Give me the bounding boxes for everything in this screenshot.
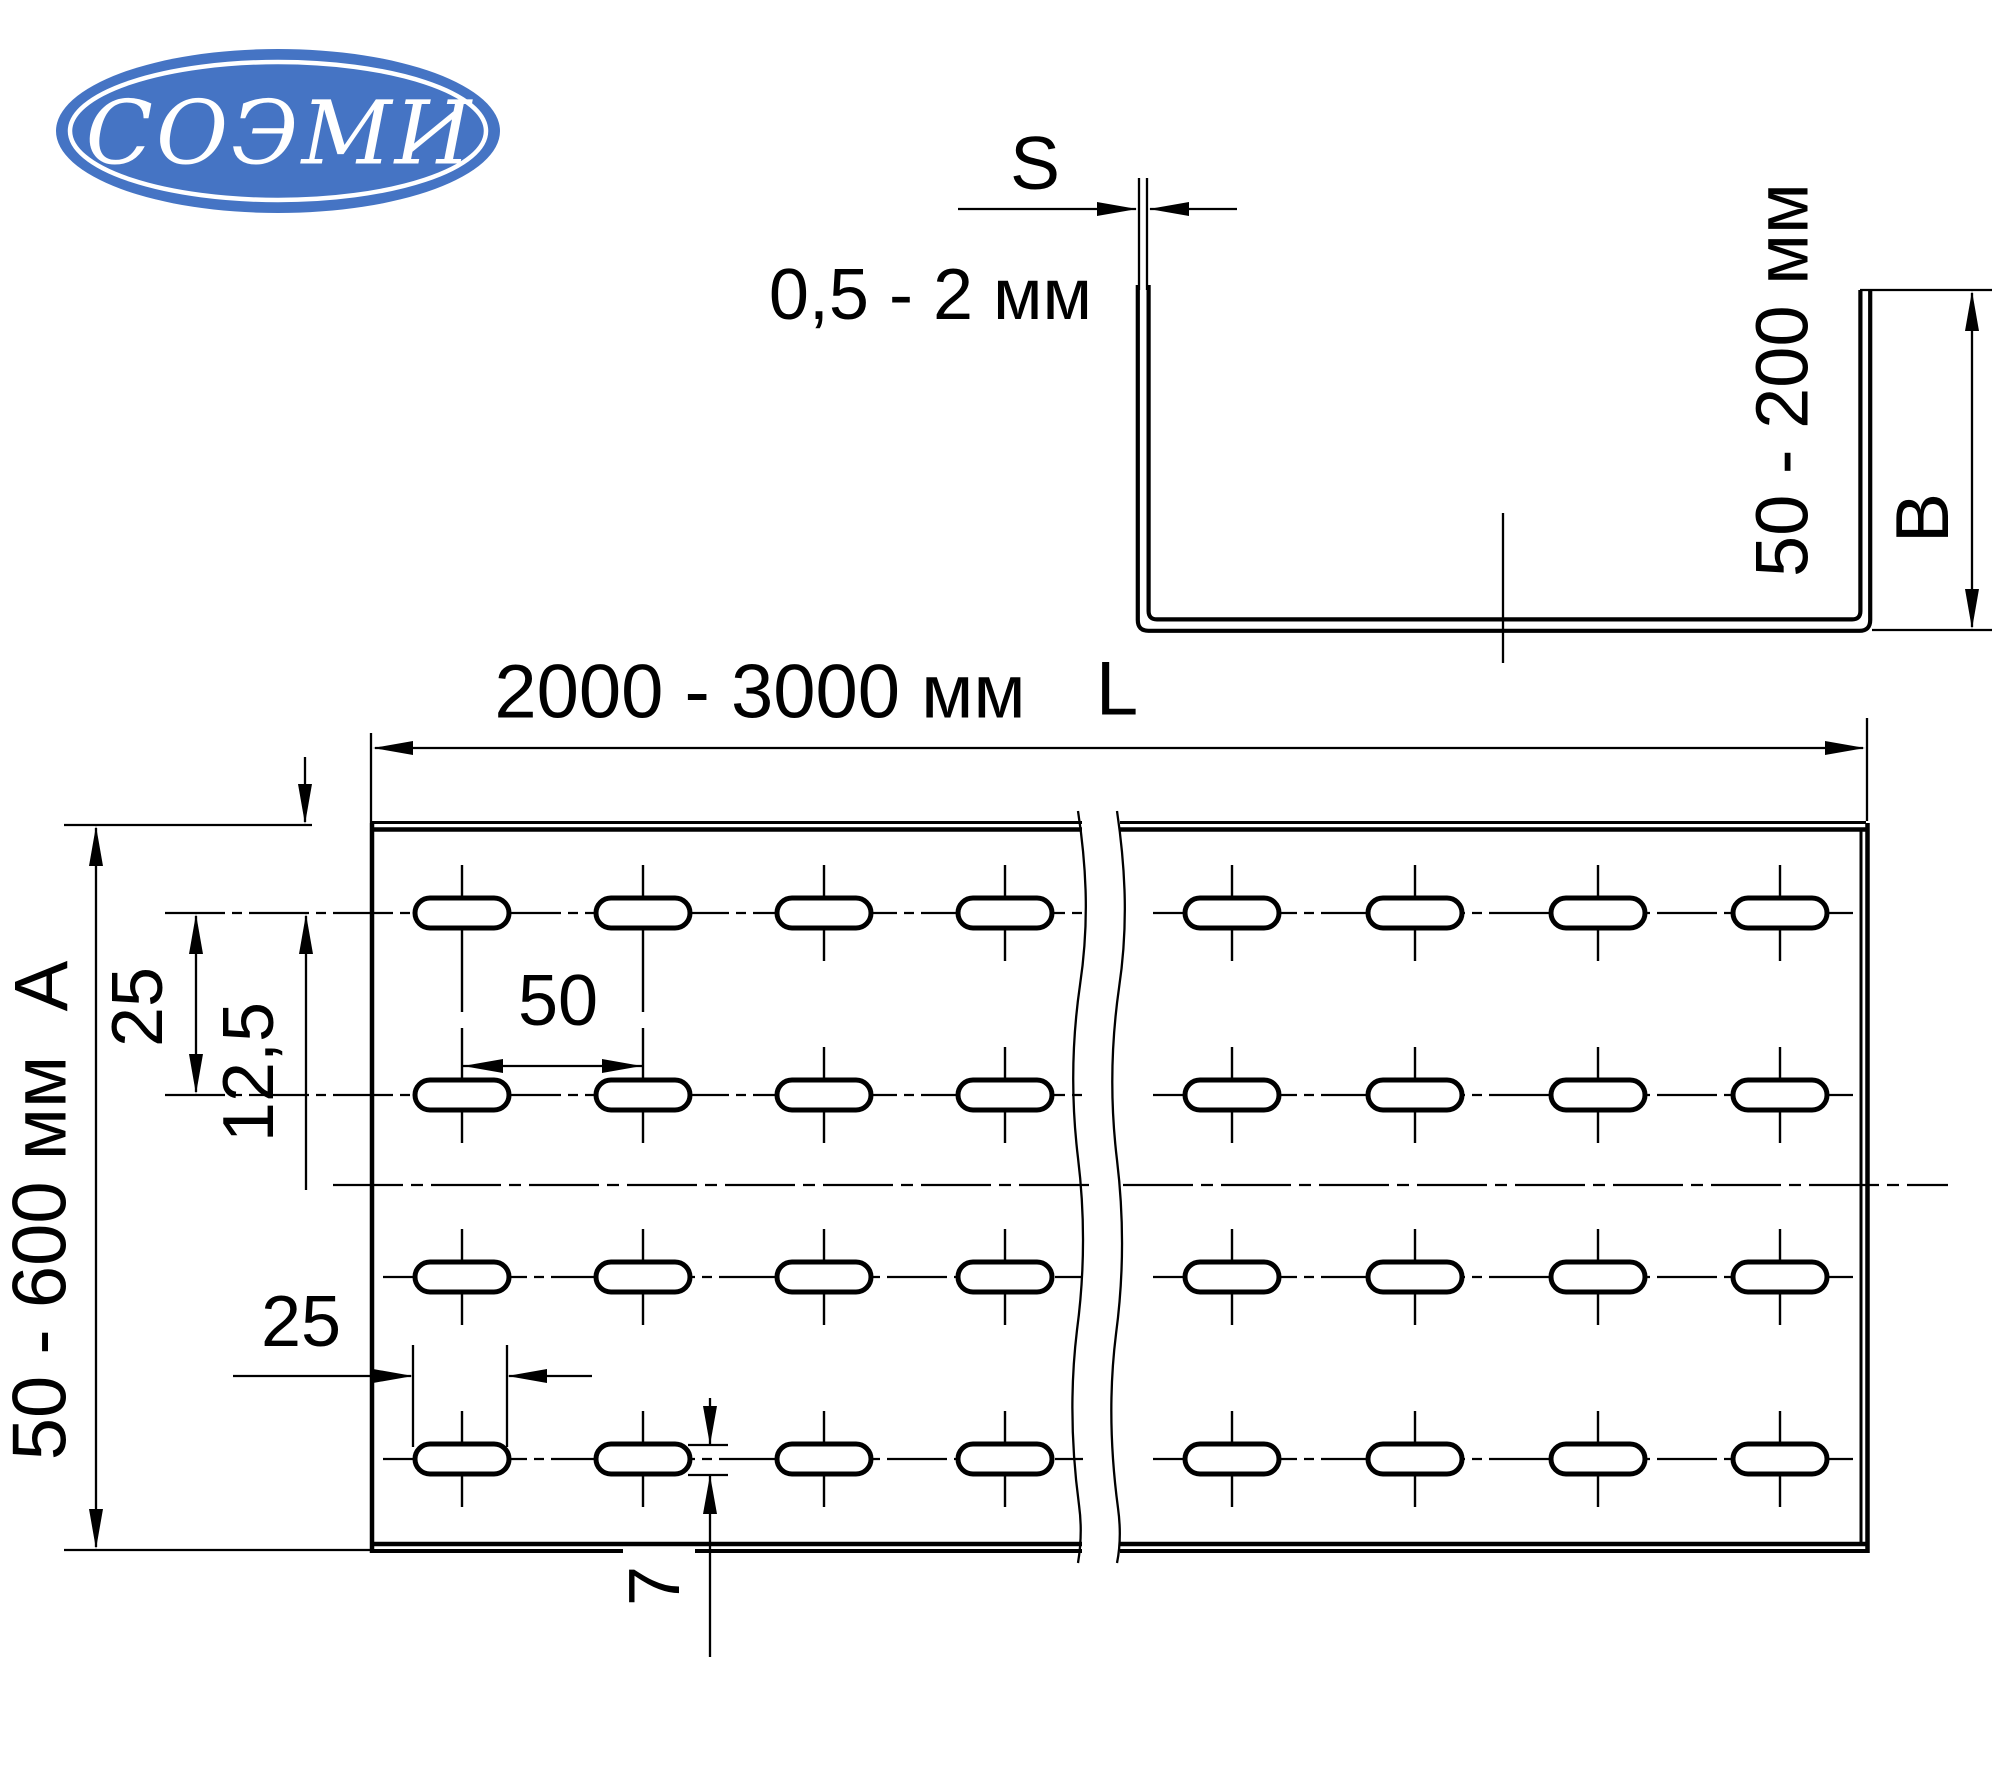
thickness-range-label: 0,5 - 2 мм <box>769 255 1092 335</box>
flange-height-letter-label: B <box>1880 493 1964 543</box>
slot <box>596 898 690 928</box>
arrow-down-icon <box>298 784 312 824</box>
slot <box>1368 1262 1462 1292</box>
flange-height-range-label: 50 - 200 мм <box>1741 183 1824 577</box>
slot <box>777 1262 871 1292</box>
slot <box>1185 1080 1279 1110</box>
arrow-left-icon <box>1149 202 1189 216</box>
arrow-up-icon <box>189 914 203 954</box>
logo-text: СОЭМИ <box>86 82 475 185</box>
slot <box>958 1262 1052 1292</box>
first-row-offset-label: 12,5 <box>209 1002 289 1142</box>
arrow-right-icon <box>373 1369 413 1383</box>
arrow-left-icon <box>463 1059 503 1073</box>
arrow-down-icon <box>703 1406 717 1445</box>
slot <box>1733 1262 1827 1292</box>
length-letter-label: L <box>1096 647 1138 732</box>
slot <box>1185 1262 1279 1292</box>
row-spacing-dimension: 25 <box>98 914 203 1094</box>
arrow-right-icon <box>1097 202 1137 216</box>
break-line <box>1072 811 1086 1563</box>
arrow-up-icon <box>703 1475 717 1514</box>
plate-outline <box>333 811 1948 1563</box>
row-spacing-label: 25 <box>98 967 178 1047</box>
slot <box>777 1444 871 1474</box>
slot <box>1185 1444 1279 1474</box>
slot-length-label: 25 <box>261 1282 341 1362</box>
break-line <box>1111 811 1125 1563</box>
slot <box>1551 1444 1645 1474</box>
slot-width-dimension: 7 <box>615 1398 728 1657</box>
slot <box>1733 898 1827 928</box>
slot <box>596 1262 690 1292</box>
slot <box>596 1444 690 1474</box>
slot <box>596 1080 690 1110</box>
width-range-label: 50 - 600 мм <box>0 1056 83 1461</box>
arrow-left-icon <box>373 741 413 755</box>
arrow-down-icon <box>189 1054 203 1094</box>
company-logo: СОЭМИ <box>56 49 500 213</box>
slot <box>958 1080 1052 1110</box>
slot-width-label: 7 <box>615 1566 695 1606</box>
slot <box>415 1444 509 1474</box>
slot <box>777 1080 871 1110</box>
slot <box>1368 1080 1462 1110</box>
slot <box>1551 1262 1645 1292</box>
slot <box>415 1262 509 1292</box>
slot <box>1551 1080 1645 1110</box>
slot <box>1185 898 1279 928</box>
drawing-canvas: СОЭМИ S 0,5 - 2 мм 50 - 200 мм B 20 <box>0 0 2000 1771</box>
width-dimension: A 50 - 600 мм <box>0 825 372 1550</box>
thickness-letter-label: S <box>1010 121 1060 205</box>
arrow-right-icon <box>1825 741 1865 755</box>
slot <box>415 1080 509 1110</box>
cross-section-view: S 0,5 - 2 мм 50 - 200 мм B <box>769 121 1992 663</box>
slot-pitch-dimension: 50 <box>463 961 642 1073</box>
arrow-down-icon <box>1965 589 1979 629</box>
slot <box>1368 898 1462 928</box>
length-dimension: 2000 - 3000 мм L <box>371 647 1867 824</box>
length-range-label: 2000 - 3000 мм <box>494 650 1025 735</box>
slot <box>1368 1444 1462 1474</box>
slot <box>415 898 509 928</box>
slot <box>958 1444 1052 1474</box>
arrow-left-icon <box>507 1369 547 1383</box>
arrow-down-icon <box>89 1509 103 1549</box>
technical-drawing: СОЭМИ S 0,5 - 2 мм 50 - 200 мм B 20 <box>0 0 2000 1771</box>
arrow-up-icon <box>299 914 313 954</box>
width-letter-label: A <box>0 960 85 1011</box>
slot-length-dimension: 25 <box>233 1282 592 1447</box>
first-row-offset-dimension: 12,5 <box>209 757 313 1190</box>
slot <box>1551 898 1645 928</box>
slot <box>1733 1444 1827 1474</box>
slot-pitch-label: 50 <box>518 961 598 1041</box>
slot <box>958 898 1052 928</box>
arrow-up-icon <box>89 826 103 866</box>
slot <box>777 898 871 928</box>
arrow-right-icon <box>602 1059 642 1073</box>
slot <box>1733 1080 1827 1110</box>
arrow-up-icon <box>1965 291 1979 331</box>
